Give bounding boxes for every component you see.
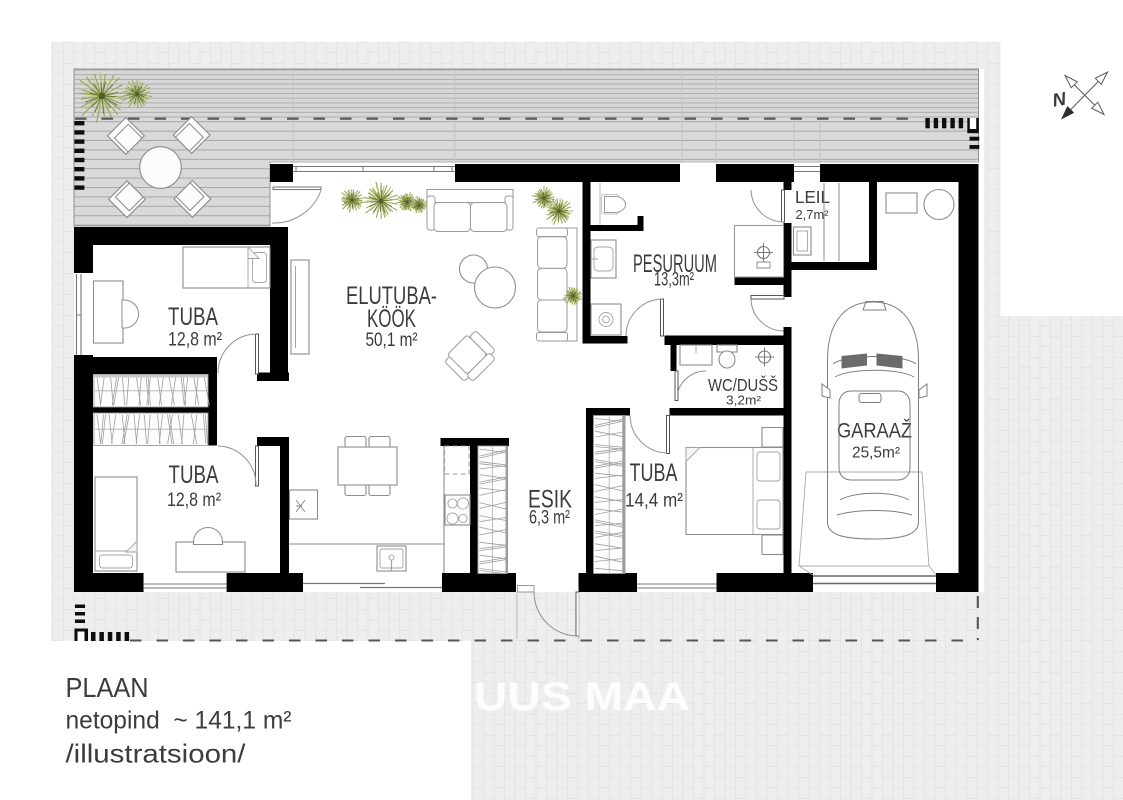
svg-text:netopind ~ 141,1 m²: netopind ~ 141,1 m² <box>66 707 292 735</box>
svg-text:3,2m²: 3,2m² <box>726 394 761 408</box>
svg-text:TUBA: TUBA <box>630 459 678 487</box>
svg-text:LEIL: LEIL <box>795 187 830 207</box>
svg-text:12,8 m²: 12,8 m² <box>168 330 222 351</box>
svg-text:12,8 m²: 12,8 m² <box>167 490 221 511</box>
svg-text:50,1 m²: 50,1 m² <box>366 330 418 351</box>
svg-text:PLAAN: PLAAN <box>66 672 149 703</box>
svg-text:TUBA: TUBA <box>168 303 218 331</box>
svg-text:GARAAŽ: GARAAŽ <box>837 418 912 443</box>
svg-text:N: N <box>1051 88 1068 111</box>
svg-text:WC/DUŠŠ: WC/DUŠŠ <box>708 374 778 395</box>
svg-text:KÖÖK: KÖÖK <box>367 305 416 333</box>
svg-text:13,3m²: 13,3m² <box>654 270 694 291</box>
svg-text:UUS MAA: UUS MAA <box>474 675 690 719</box>
svg-text:14,4 m²: 14,4 m² <box>625 491 683 512</box>
svg-text:25,5m²: 25,5m² <box>852 445 900 462</box>
svg-text:/illustratsioon/: /illustratsioon/ <box>66 739 247 769</box>
svg-text:6,3 m²: 6,3 m² <box>529 508 570 529</box>
svg-text:TUBA: TUBA <box>169 461 219 489</box>
